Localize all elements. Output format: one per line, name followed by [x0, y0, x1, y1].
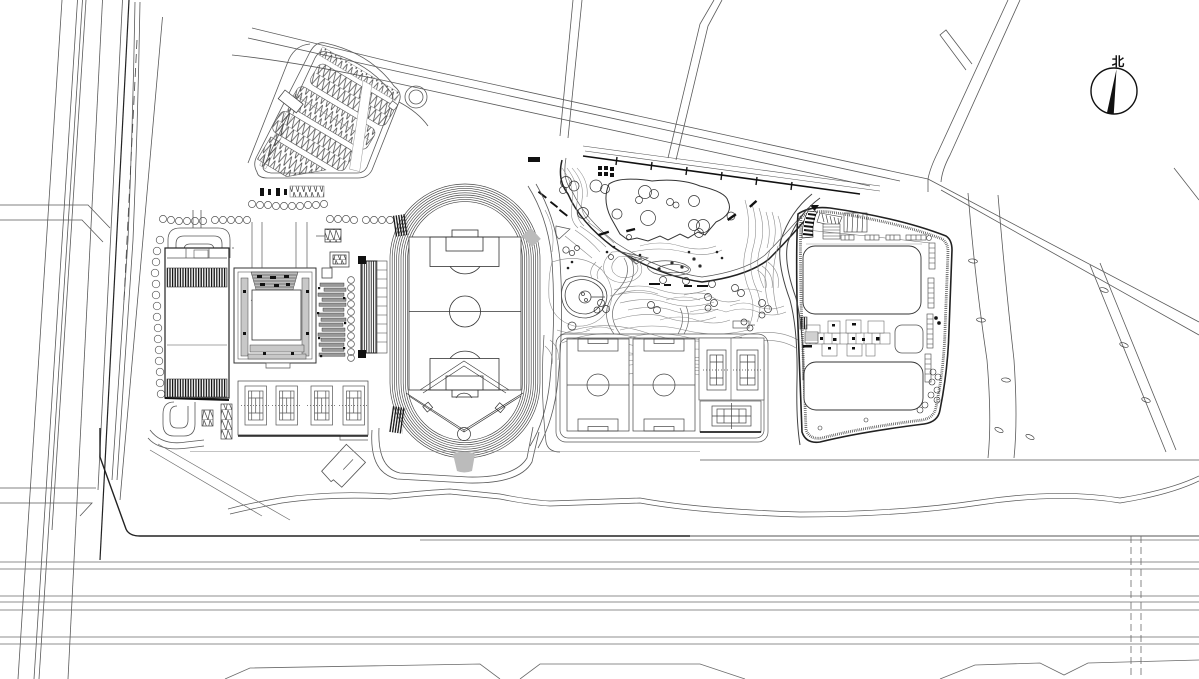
svg-text:北: 北 [1112, 54, 1125, 69]
